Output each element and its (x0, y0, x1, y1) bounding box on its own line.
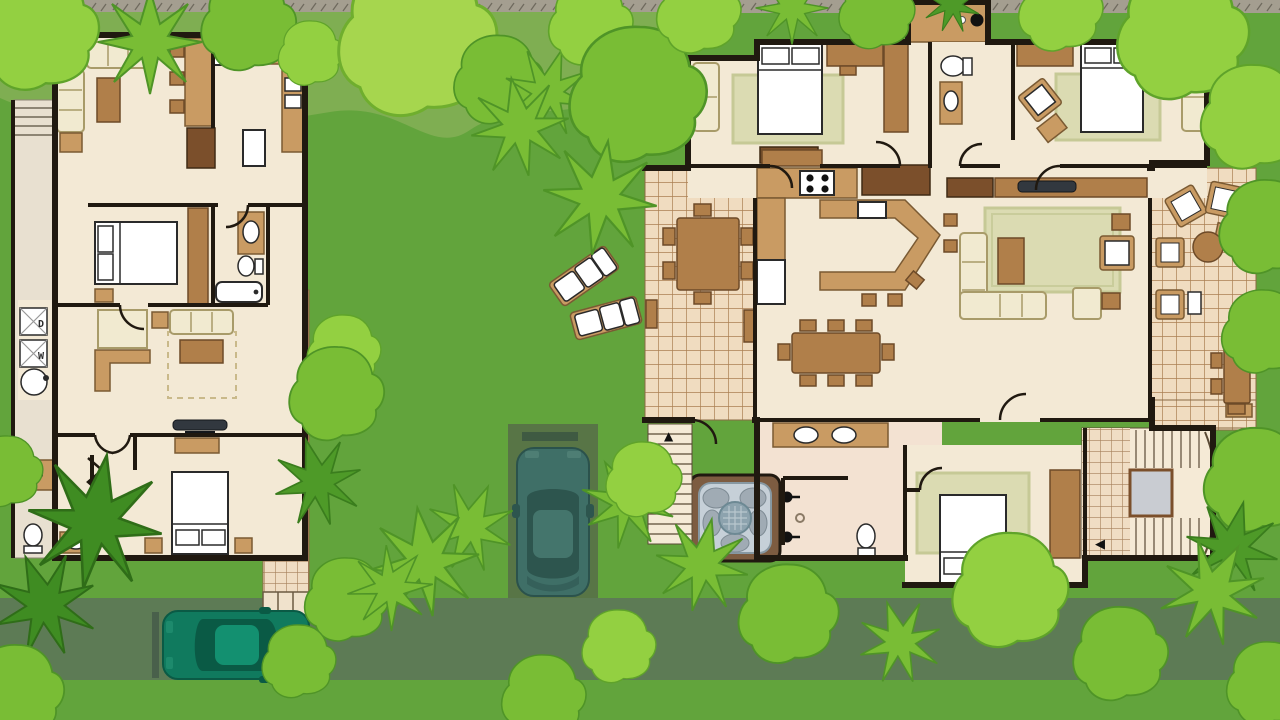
vanity-sink (243, 221, 259, 243)
armchair (1100, 236, 1134, 270)
svg-text:D: D (38, 319, 44, 330)
hall-closet (862, 165, 930, 195)
ottoman (1073, 288, 1101, 319)
side-table (152, 312, 168, 328)
dishwasher (757, 260, 785, 304)
site-plan-illustration: D W (0, 0, 1280, 720)
svg-text:W: W (38, 351, 45, 362)
double-vanity (773, 423, 888, 447)
wall-tv (173, 420, 227, 432)
closet (1050, 470, 1080, 558)
stair-direction-arrow: ◀ (1095, 537, 1105, 552)
sink-bowl (285, 95, 301, 108)
toilet (857, 524, 875, 556)
teal-car (512, 448, 594, 596)
driveway-stop-bar (522, 432, 578, 441)
desk-chair (840, 66, 856, 75)
wardrobe (884, 40, 908, 132)
bathtub (216, 282, 262, 302)
bed (95, 222, 177, 284)
stove (800, 171, 834, 195)
bar-stool (170, 100, 184, 113)
nightstand (95, 289, 113, 302)
planter (646, 300, 657, 328)
patio-table (677, 218, 739, 290)
side-table (1112, 214, 1130, 230)
media-wall (947, 178, 1147, 197)
bed-2 (172, 472, 228, 554)
tv (1018, 181, 1076, 192)
mirror (512, 504, 520, 518)
coffee-table (97, 78, 120, 122)
steps-up-arrow: ▲ (664, 429, 674, 443)
roof (215, 625, 259, 665)
coffee-table-2 (180, 340, 223, 363)
mid-landing (1130, 470, 1172, 516)
washer: W (20, 340, 47, 367)
curb-marker (152, 612, 159, 678)
hall-cabinet (762, 150, 822, 166)
patio-chair-square (1156, 290, 1184, 319)
guest-villa: D W (13, 35, 305, 558)
pantry-closet (187, 128, 215, 168)
bed (758, 44, 822, 134)
coffee-table (998, 238, 1024, 284)
hall-closet (243, 130, 265, 166)
toilet-2 (24, 524, 42, 553)
sofa-3 (170, 310, 233, 334)
stair-landing-tiles (1082, 428, 1130, 558)
nightstand (235, 538, 252, 553)
mirror (586, 504, 594, 518)
fridge (858, 202, 886, 218)
counter-side (757, 198, 785, 260)
wardrobe (188, 208, 208, 304)
patio-chair-square (1156, 238, 1184, 267)
floorplan-svg: D W (0, 0, 1280, 720)
deck-bench (744, 310, 754, 342)
nightstand (145, 538, 162, 553)
toilet (941, 56, 972, 76)
dining-table (792, 333, 880, 373)
small-table (1188, 292, 1201, 314)
dryer: D (20, 308, 47, 335)
roof (533, 510, 573, 558)
mirror (259, 607, 271, 614)
side-table (1102, 293, 1120, 309)
side-table (60, 133, 82, 152)
dresser (175, 438, 219, 453)
vanity-sink (944, 91, 958, 111)
toilet (238, 256, 263, 276)
living-room-main (960, 208, 1134, 319)
laundry: D W (20, 308, 49, 395)
